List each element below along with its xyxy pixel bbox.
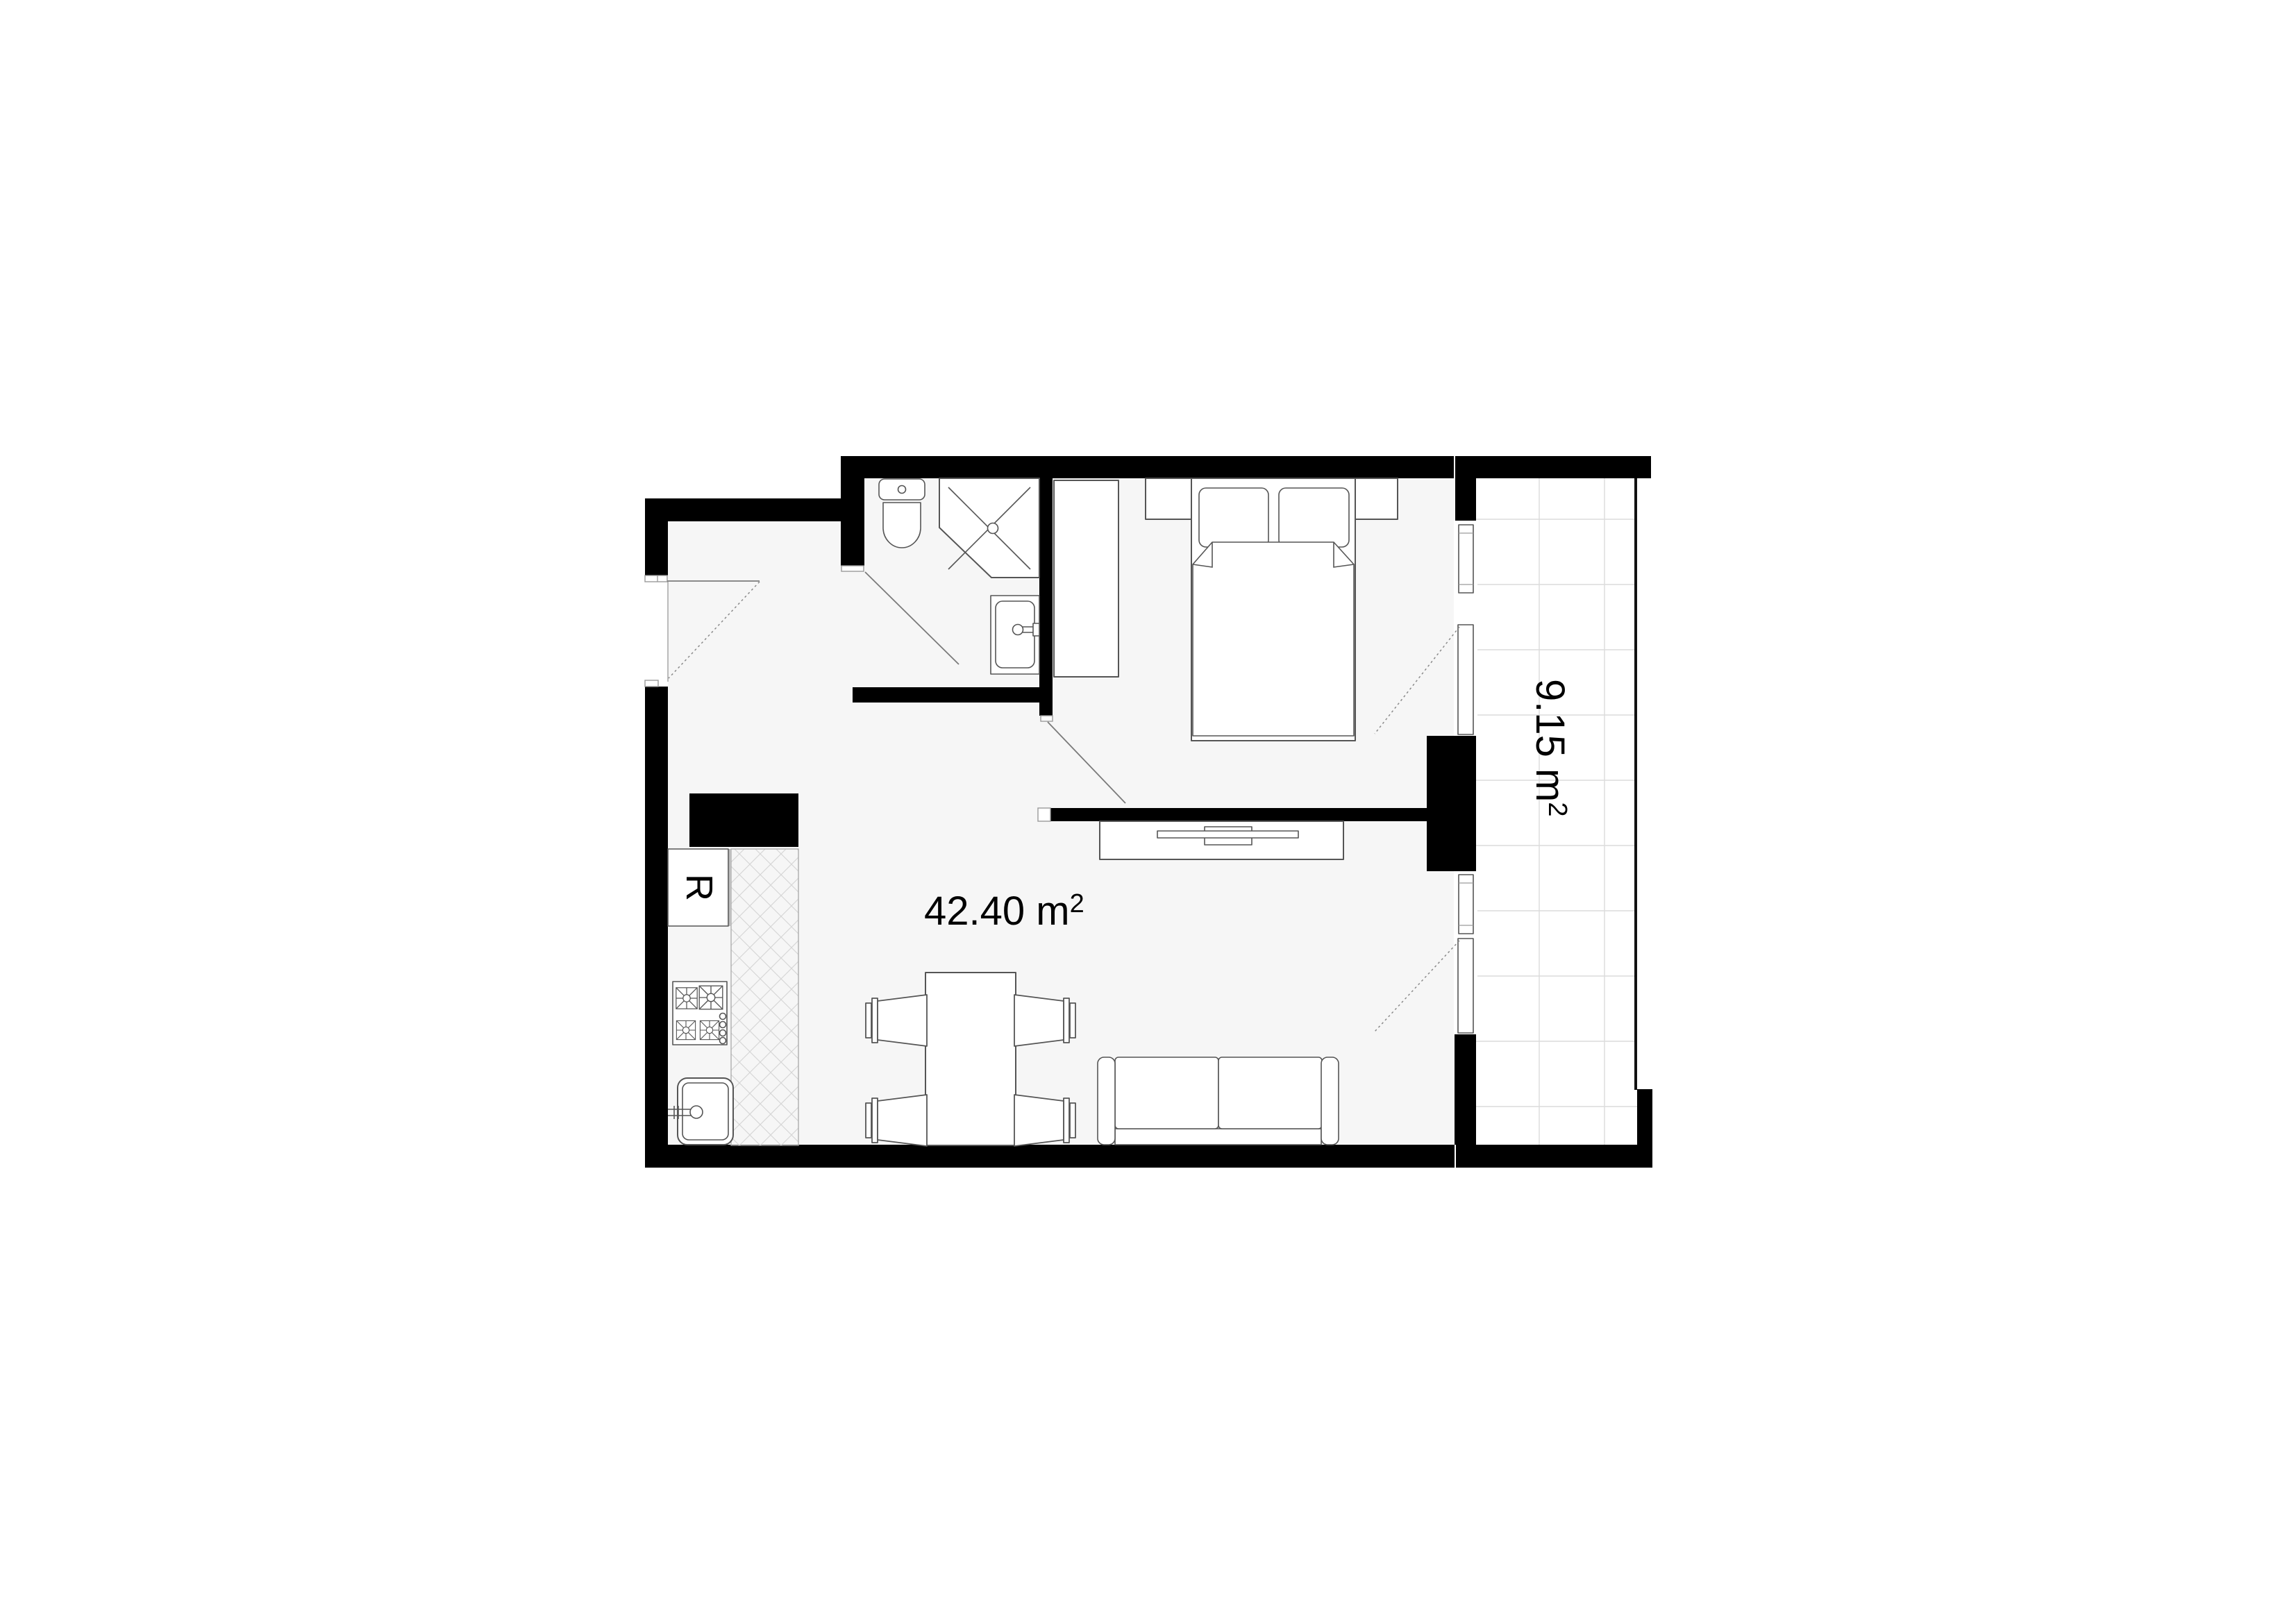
washbasin-faucet-handle xyxy=(1033,623,1039,636)
kitchen-countertop xyxy=(731,849,798,1145)
cooktop-knob xyxy=(720,1038,726,1044)
refrigerator-label: R xyxy=(678,874,720,901)
burner xyxy=(676,988,697,1009)
wall-tv-partition xyxy=(1038,808,1427,821)
pillow-right xyxy=(1279,488,1349,547)
wall-balcony-right-stub xyxy=(1637,1089,1652,1168)
burner xyxy=(676,1020,695,1039)
nightstand-left xyxy=(1146,478,1191,519)
sofa-cushion-left xyxy=(1115,1057,1218,1129)
tv-screen xyxy=(1157,831,1298,838)
sink-faucet xyxy=(690,1106,703,1118)
sofa-backrest xyxy=(1115,1129,1321,1145)
washbasin-faucet xyxy=(1013,625,1023,635)
cooktop-knob xyxy=(720,1014,726,1020)
wall-pier-block xyxy=(1427,736,1476,871)
bedroom-door-sill xyxy=(1041,716,1053,721)
entry-door-sill-bottom xyxy=(645,680,658,687)
bedroom-balcony-window xyxy=(1459,525,1473,593)
entry-door-sill-top xyxy=(645,575,667,582)
chair-top-left xyxy=(866,995,927,1046)
sofa xyxy=(1098,1057,1339,1145)
pillow-left xyxy=(1199,488,1268,547)
blanket xyxy=(1193,542,1354,736)
wall-top-balcony xyxy=(1456,456,1651,478)
shower-drain xyxy=(988,523,998,534)
kitchen-sink-basin xyxy=(682,1083,728,1140)
dining-table xyxy=(925,973,1016,1145)
sofa-cushion-right xyxy=(1218,1057,1322,1129)
bedroom-balcony-door-leaf xyxy=(1458,625,1473,734)
living-area-label: 42.40 m2 xyxy=(924,889,1084,934)
floor-plan-page: 9.15 m2 xyxy=(0,0,2296,1623)
bathroom-door-sill xyxy=(841,566,864,571)
floor-plan-drawing: 9.15 m2 xyxy=(0,0,2296,1623)
chair-top-right xyxy=(1014,995,1075,1046)
wall-bottom-seam xyxy=(1455,1145,1456,1168)
toilet-bowl xyxy=(883,503,921,548)
kitchen: R xyxy=(668,849,798,1145)
sofa-armrest-right xyxy=(1321,1057,1339,1145)
sofa-armrest-left xyxy=(1098,1057,1115,1145)
toilet-flush-button xyxy=(898,486,906,494)
wall-bathroom-right xyxy=(1039,478,1053,716)
wall-left-lower xyxy=(645,687,668,1168)
nightstand-right xyxy=(1354,478,1398,519)
wall-balcony-divider-top xyxy=(1455,456,1476,521)
wall-left-upper xyxy=(645,498,668,575)
wall-bathroom-bottom xyxy=(853,687,1041,703)
chair-bottom-right xyxy=(1014,1095,1075,1146)
tv-wall-end-cap xyxy=(1038,808,1050,821)
wall-balcony-divider-bottom xyxy=(1455,1034,1476,1145)
wall-bathroom-left-column xyxy=(841,456,864,566)
balcony-area-label: 9.15 m2 xyxy=(1527,679,1573,816)
wall-top-main xyxy=(841,456,1454,478)
wardrobe xyxy=(1054,480,1118,677)
wall-kitchen-block xyxy=(689,793,798,847)
living-balcony-door-leaf xyxy=(1458,939,1473,1033)
wall-bottom xyxy=(645,1145,1652,1168)
wall-entry-top xyxy=(645,498,842,521)
burner xyxy=(699,986,723,1009)
cooktop-knob xyxy=(720,1022,726,1028)
burner xyxy=(700,1020,719,1039)
living-balcony-window xyxy=(1459,875,1473,934)
chair-bottom-left xyxy=(866,1095,927,1146)
cooktop-knob xyxy=(720,1030,726,1036)
